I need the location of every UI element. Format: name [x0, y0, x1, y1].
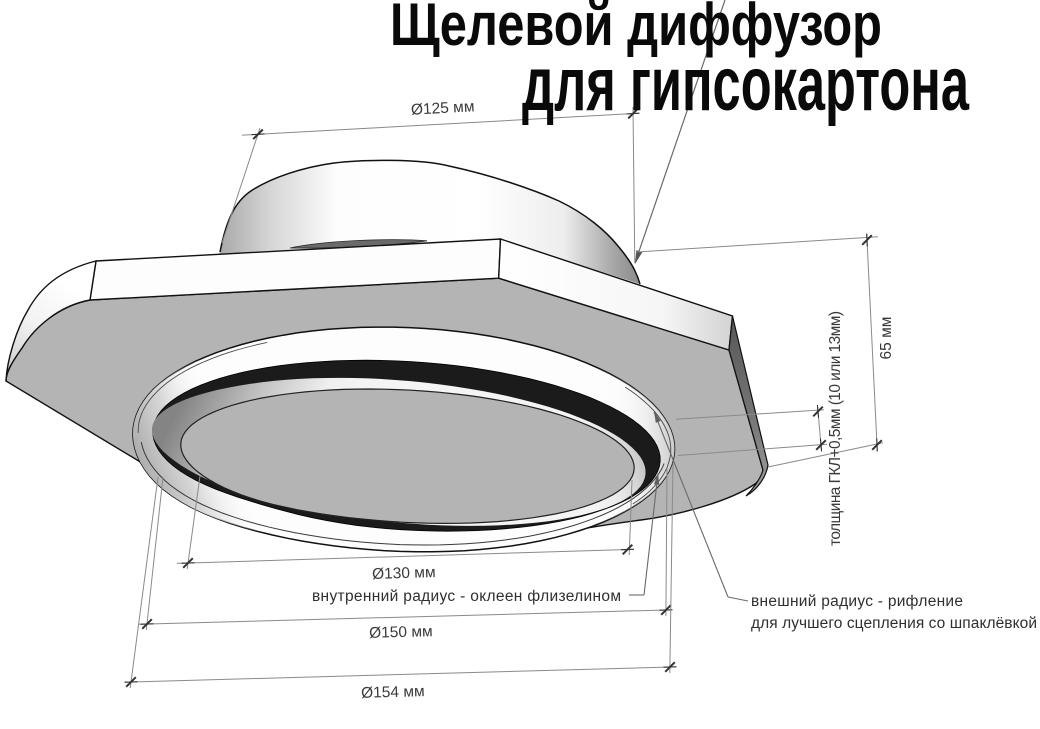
svg-text:Ø125 мм: Ø125 мм	[411, 98, 475, 119]
svg-text:для лучшего сцепления со шпакл: для лучшего сцепления со шпаклёвкой	[751, 615, 1037, 632]
svg-text:Ø150 мм: Ø150 мм	[369, 623, 433, 642]
svg-text:Ø154 мм: Ø154 мм	[361, 683, 425, 702]
svg-text:внешний радиус - рифление: внешний радиус - рифление	[751, 593, 963, 610]
svg-text:65 мм: 65 мм	[878, 317, 895, 360]
svg-text:для гипсокартона: для гипсокартона	[522, 42, 969, 127]
svg-text:Ø130 мм: Ø130 мм	[372, 564, 436, 583]
svg-text:внутренний радиус - оклеен фли: внутренний радиус - оклеен флизелином	[312, 588, 621, 605]
svg-text:толщина ГКЛ+0,5мм (10 или 13мм: толщина ГКЛ+0,5мм (10 или 13мм)	[827, 311, 844, 546]
